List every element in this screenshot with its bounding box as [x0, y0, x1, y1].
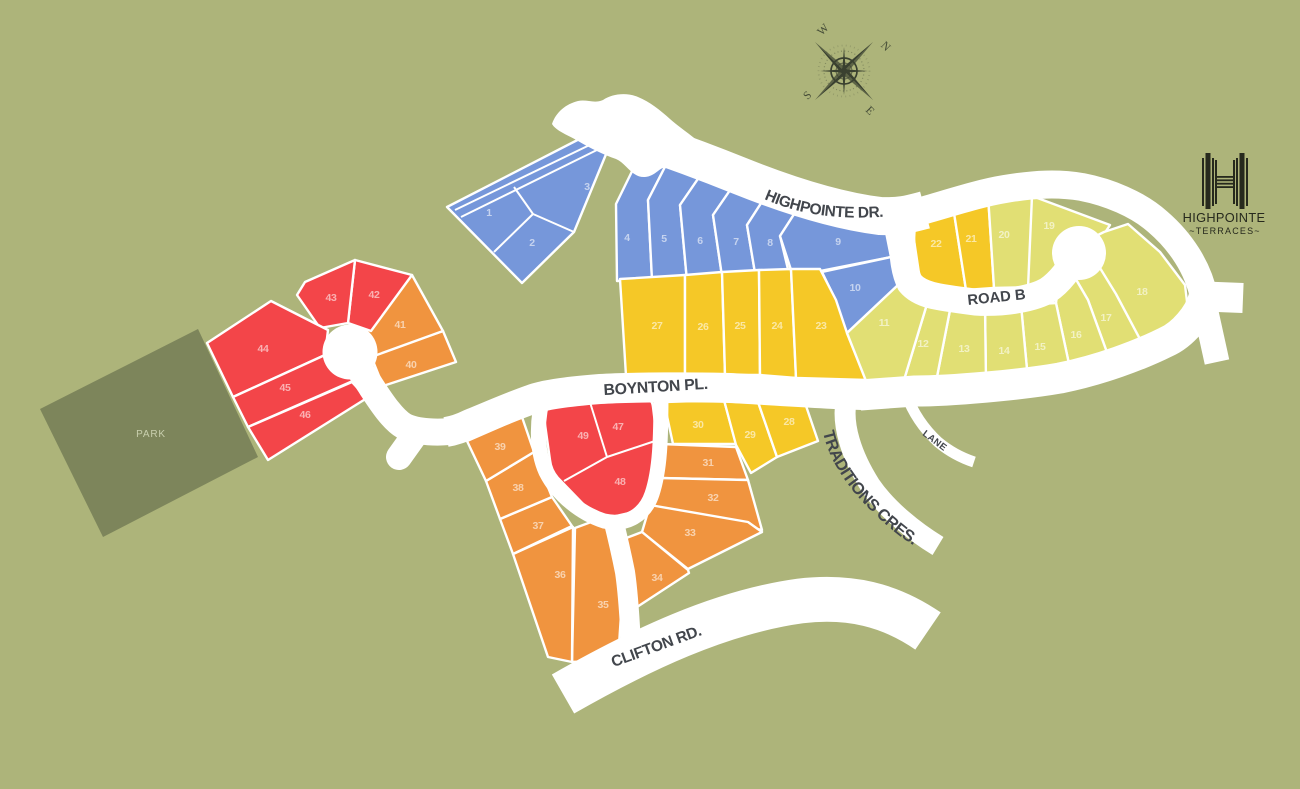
svg-text:4: 4 — [624, 232, 630, 244]
svg-text:12: 12 — [917, 338, 929, 350]
svg-text:27: 27 — [651, 320, 663, 332]
svg-text:33: 33 — [684, 527, 696, 539]
svg-text:21: 21 — [965, 233, 977, 245]
svg-text:41: 41 — [394, 319, 406, 331]
svg-text:18: 18 — [1136, 286, 1148, 298]
svg-text:17: 17 — [1100, 312, 1112, 324]
svg-text:47: 47 — [612, 421, 624, 433]
svg-text:~TERRACES~: ~TERRACES~ — [1189, 226, 1261, 236]
svg-text:9: 9 — [835, 236, 841, 248]
svg-text:44: 44 — [257, 343, 269, 355]
svg-text:48: 48 — [614, 476, 626, 488]
svg-text:45: 45 — [279, 382, 291, 394]
svg-text:8: 8 — [767, 237, 773, 249]
svg-text:23: 23 — [815, 320, 827, 332]
svg-text:19: 19 — [1043, 220, 1055, 232]
svg-text:26: 26 — [697, 321, 709, 333]
svg-text:15: 15 — [1034, 341, 1046, 353]
svg-text:25: 25 — [734, 320, 746, 332]
svg-text:3: 3 — [584, 181, 590, 193]
svg-text:46: 46 — [299, 409, 311, 421]
svg-text:5: 5 — [661, 233, 667, 245]
svg-text:PARK: PARK — [136, 429, 166, 440]
svg-text:40: 40 — [405, 359, 417, 371]
svg-text:34: 34 — [651, 572, 663, 584]
svg-text:7: 7 — [733, 236, 739, 248]
svg-text:11: 11 — [879, 317, 890, 329]
svg-text:37: 37 — [532, 520, 544, 532]
svg-text:38: 38 — [512, 482, 524, 494]
svg-text:13: 13 — [958, 343, 970, 355]
svg-text:39: 39 — [494, 441, 506, 453]
svg-text:28: 28 — [783, 416, 795, 428]
svg-text:22: 22 — [930, 238, 942, 250]
svg-text:43: 43 — [325, 292, 337, 304]
svg-text:24: 24 — [771, 320, 783, 332]
svg-text:6: 6 — [697, 235, 703, 247]
svg-text:16: 16 — [1070, 329, 1082, 341]
svg-text:42: 42 — [368, 289, 380, 301]
svg-text:30: 30 — [692, 419, 704, 431]
svg-text:20: 20 — [998, 229, 1010, 241]
svg-text:36: 36 — [554, 569, 566, 581]
svg-text:1: 1 — [486, 207, 492, 219]
svg-text:14: 14 — [998, 345, 1010, 357]
svg-text:29: 29 — [744, 429, 756, 441]
svg-text:10: 10 — [849, 282, 861, 294]
svg-text:49: 49 — [577, 430, 589, 442]
svg-text:2: 2 — [529, 237, 535, 249]
svg-text:32: 32 — [707, 492, 719, 504]
svg-text:35: 35 — [597, 599, 609, 611]
svg-text:HIGHPOINTE: HIGHPOINTE — [1183, 210, 1266, 225]
svg-text:31: 31 — [702, 457, 714, 469]
